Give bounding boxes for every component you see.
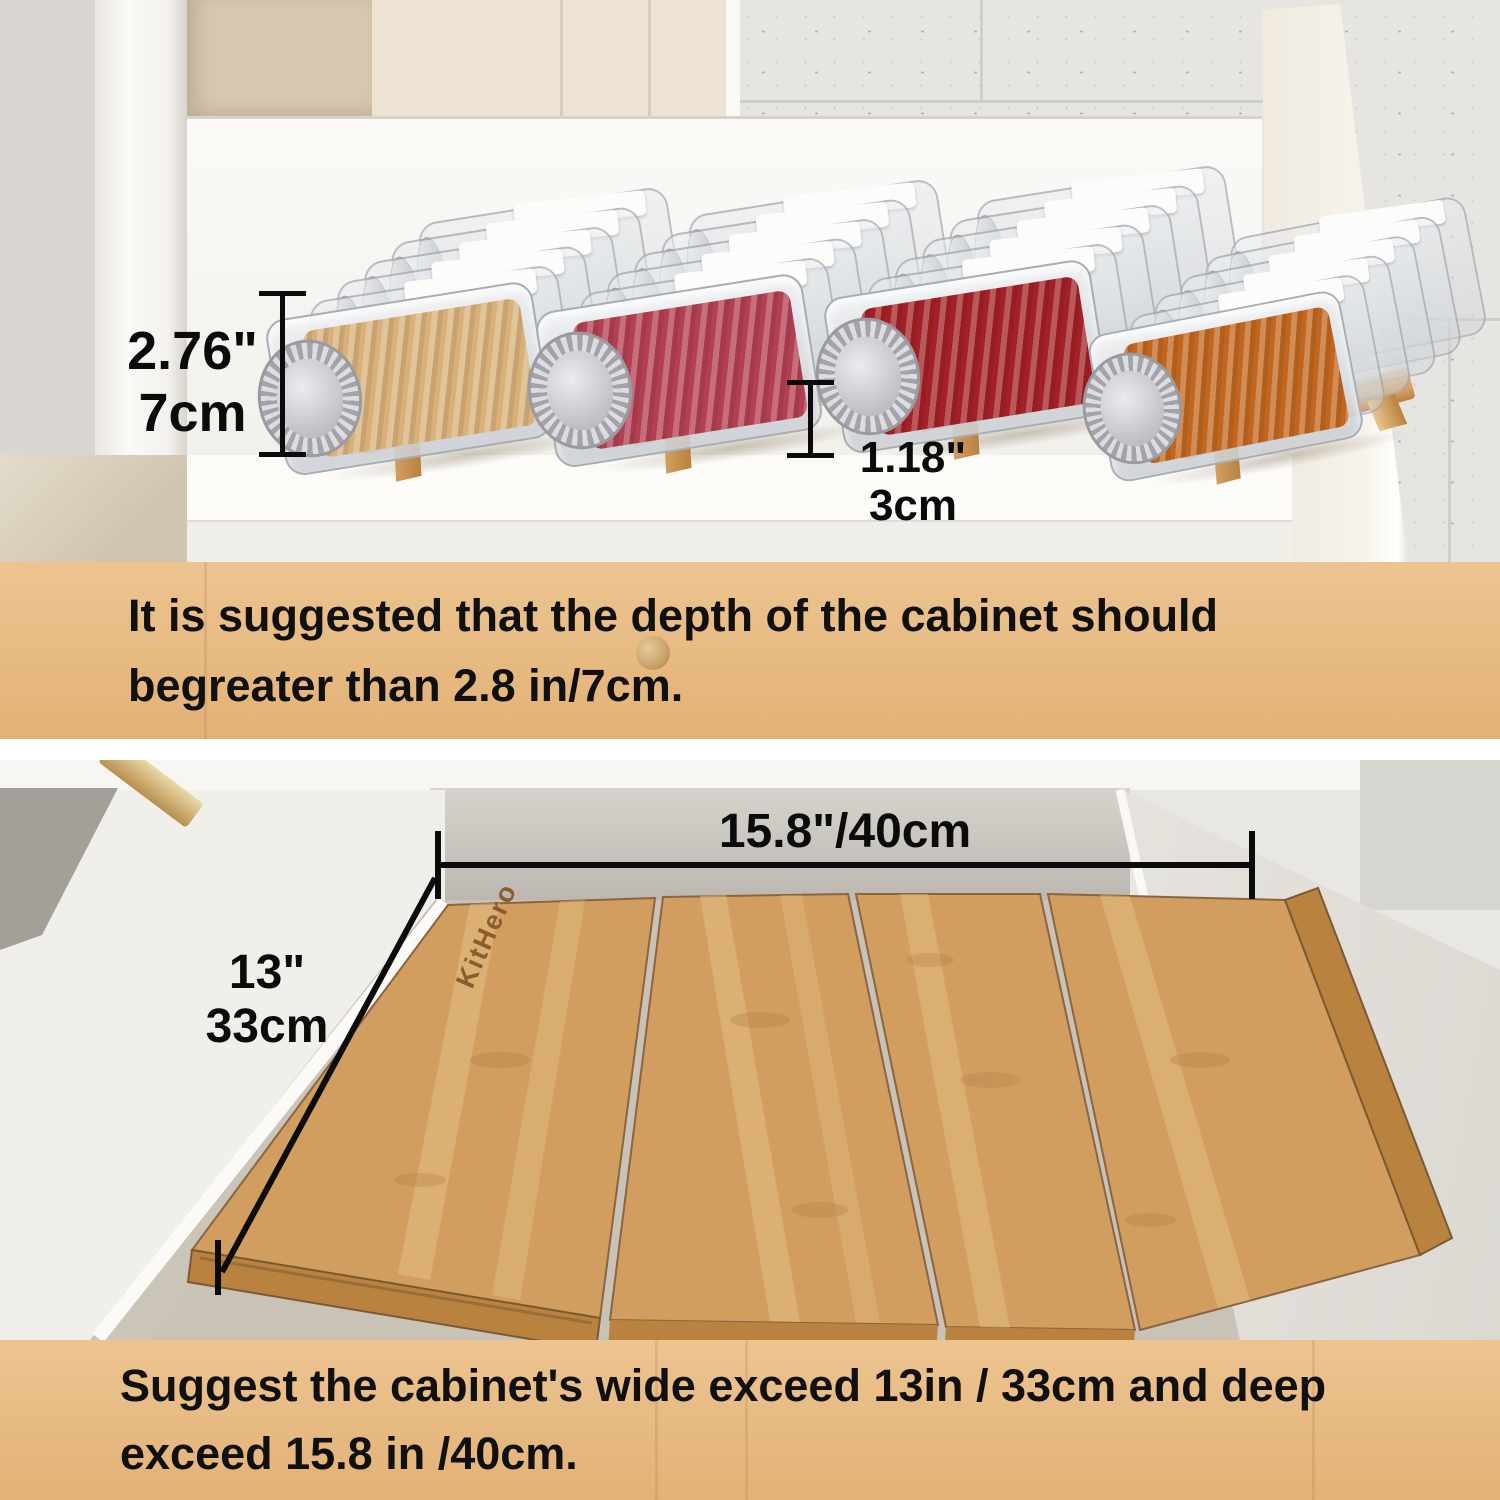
cabinet-corner-shadow (0, 455, 187, 562)
info-banner-top: It is suggested that the depth of the ca… (0, 562, 1500, 739)
drawer-front-edge (187, 520, 1292, 562)
dimension-label-jar-clearance: 2.76" 7cm (100, 320, 285, 444)
banner-top-line1: It is suggested that the depth of the ca… (128, 592, 1218, 640)
top-photo-drawer-with-jars: 2.76" 7cm 1.18" 3cm (0, 0, 1500, 562)
product-infographic: 2.76" 7cm 1.18" 3cm It is suggested that… (0, 0, 1500, 1500)
dimension-value-metric: 3cm (838, 482, 988, 530)
banner-top-line2: begreater than 2.8 in/7cm. (128, 662, 683, 710)
tile-grout-line (980, 0, 983, 100)
banner-bottom-line2: exceed 15.8 in /40cm. (120, 1430, 578, 1478)
dimension-label-width: 13" 33cm (172, 946, 362, 1054)
wall-left (0, 0, 95, 455)
tile-grout-line (740, 100, 1270, 103)
banner-bottom-line1: Suggest the cabinet's wide exceed 13in /… (120, 1362, 1326, 1410)
dimension-value-metric: 7cm (100, 382, 285, 444)
cabinet-door-edge (726, 0, 740, 120)
dimension-value-inches: 13" (172, 946, 362, 1000)
dimension-value-inches: 2.76" (100, 320, 285, 382)
dimension-value-inches: 1.18" (838, 434, 988, 482)
bottom-photo-drawer-with-organizer: KitHero 15.8"/40cm 13" 33cm (0, 760, 1500, 1340)
cabinet-recess (187, 0, 372, 118)
tile-grout-line (1448, 318, 1451, 562)
cabinet-door (372, 0, 730, 118)
dimension-line-step-height (808, 380, 813, 458)
dimension-label-depth: 15.8"/40cm (640, 806, 1050, 858)
dimension-line-width (222, 878, 435, 1272)
info-banner-bottom: Suggest the cabinet's wide exceed 13in /… (0, 1340, 1500, 1500)
dimension-value-metric: 33cm (172, 1000, 362, 1054)
dimension-label-step-height: 1.18" 3cm (838, 434, 988, 530)
